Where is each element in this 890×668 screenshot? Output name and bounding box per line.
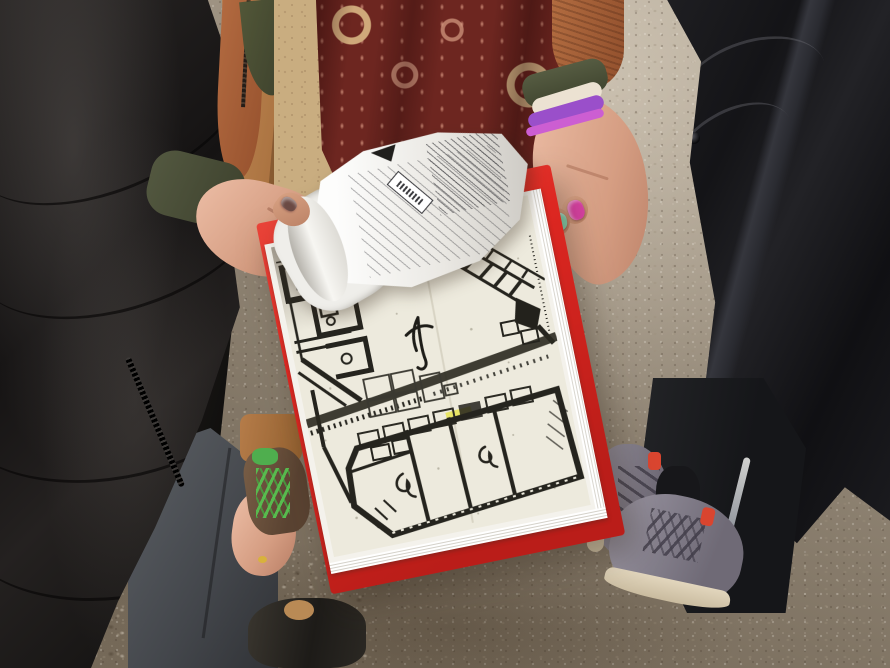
- shoe-heel-tab: [648, 452, 661, 470]
- photo-canvas: [0, 0, 890, 668]
- dark-shoe-heel-patch: [284, 600, 314, 620]
- green-sock: [252, 448, 278, 465]
- ring-glint: [258, 556, 267, 563]
- form-header-mark: [370, 144, 399, 165]
- shoe-laces: [643, 508, 707, 563]
- shoe-heel-tab: [699, 507, 715, 527]
- form-dense-text-lines: [425, 129, 511, 215]
- green-boot-laces: [256, 468, 290, 518]
